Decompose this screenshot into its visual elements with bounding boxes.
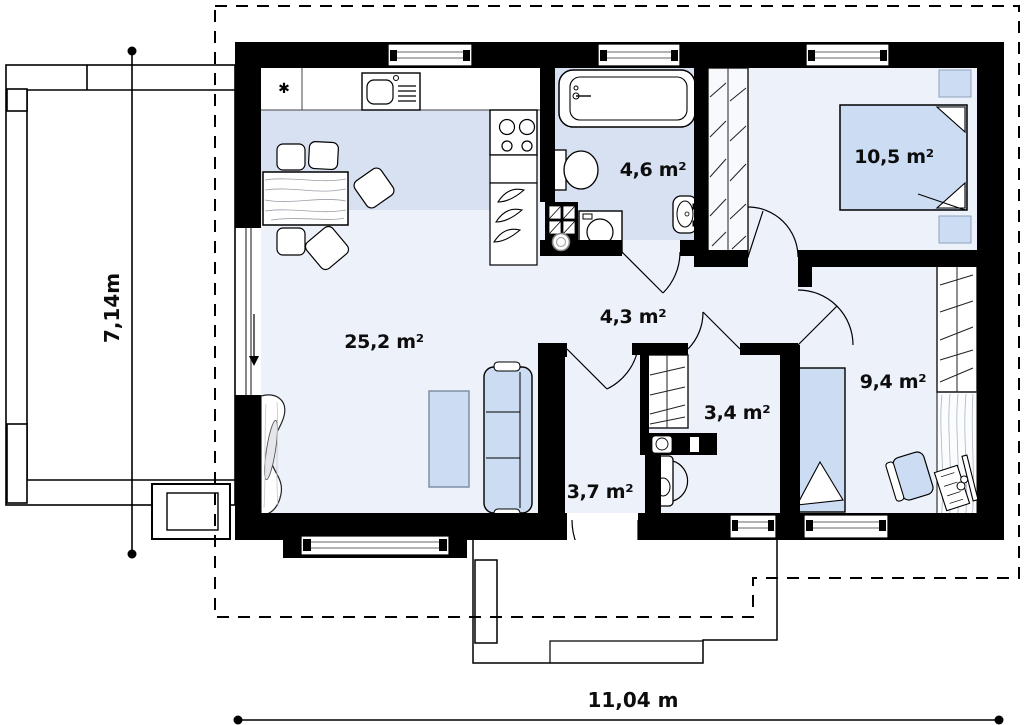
front-door-opening — [567, 513, 638, 540]
kitchen-cabinet-heater — [490, 155, 537, 265]
window-living — [283, 513, 467, 558]
floor-plan-page: ✱ 25,2 m² 4,6 m² 10,5 m² 4,3 m² 3,4 m² 3… — [0, 0, 1024, 725]
sofa — [484, 362, 532, 518]
room-label-wc: 3,4 m² — [704, 402, 771, 424]
window-wc — [730, 515, 776, 538]
stove — [490, 110, 537, 155]
toilet-bathroom — [554, 150, 598, 190]
window-kitchen — [388, 44, 472, 66]
room-label-bedroom-main: 10,5 m² — [854, 146, 934, 168]
nightstand-bottom — [939, 216, 971, 243]
dimension-height-label: 7,14m — [100, 273, 124, 343]
window-bedroom-main — [806, 44, 889, 66]
room-label-living-kitchen: 25,2 m² — [344, 331, 424, 353]
bathtub — [559, 70, 695, 127]
window-bathroom — [598, 44, 680, 66]
dining-table — [263, 172, 348, 225]
terrace-glass-door — [236, 228, 261, 395]
porch — [473, 540, 777, 663]
dimension-width-label: 11,04 m — [587, 688, 678, 712]
nightstand-top — [939, 70, 971, 97]
room-label-bedroom-second: 9,4 m² — [860, 371, 927, 393]
room-label-hallway: 4,3 m² — [600, 306, 667, 328]
room-label-entrance-hall: 3,7 m² — [567, 481, 634, 503]
dimension-height-line — [128, 47, 137, 559]
kitchen-sink — [362, 73, 420, 110]
rug — [429, 391, 469, 487]
dimension-width-line — [234, 716, 1004, 725]
window-bedroom-second — [804, 515, 888, 538]
room-label-bathroom: 4,6 m² — [620, 159, 687, 181]
fridge-symbol-icon: ✱ — [278, 81, 290, 97]
floor-plan-drawing — [0, 0, 1024, 725]
bathroom-sink — [673, 196, 697, 233]
terrace-corner-post — [152, 484, 230, 539]
